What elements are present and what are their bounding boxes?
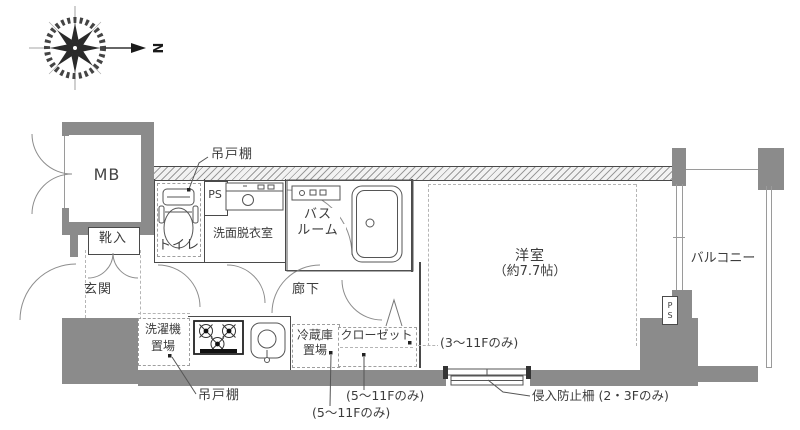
compass-rose: N — [29, 6, 164, 90]
room-label-western-room-line1: 洋室 — [480, 248, 580, 264]
annotation-closet-floors: (5〜11Fのみ) — [346, 389, 424, 403]
room-label-laundry-line2: 置場 — [139, 340, 187, 354]
sink-icon — [251, 323, 285, 363]
annotation-fridge-floors: (5〜11Fのみ) — [312, 406, 390, 420]
dot-closet-floors — [362, 353, 366, 357]
bathroom-counter-icon — [292, 186, 340, 200]
room-label-fridge-line1: 冷蔵庫 — [292, 329, 338, 343]
annotation-hanging-cupboard-bottom: 吊戸棚 — [198, 389, 240, 404]
entry-inner-door-arc-left — [88, 253, 113, 278]
room-label-washroom: 洗面脱衣室 — [202, 227, 284, 241]
annotation-hanging-cupboard-top: 吊戸棚 — [211, 148, 253, 163]
lower-window-stub-left — [443, 366, 448, 379]
western-room-door-arc — [342, 280, 382, 320]
room-label-mb: MB — [84, 166, 130, 184]
room-label-fridge-line2: 置場 — [292, 344, 338, 358]
mb-door-arc-top — [32, 134, 72, 174]
washroom-door-arc — [227, 265, 265, 303]
dot-hanging-cupboard-top — [187, 188, 191, 192]
room-label-bathroom-line1: バス — [296, 208, 340, 223]
plan-drawing-layer: N — [0, 0, 800, 430]
western-room-door-leaf — [386, 300, 402, 326]
entrance-door-arc — [20, 264, 76, 320]
leader-fridge-floors — [330, 355, 331, 406]
room-label-hallway: 廊下 — [292, 283, 320, 298]
room-label-toilet: トイレ — [154, 239, 204, 254]
leader-hanging-cupboard-bottom — [172, 357, 196, 394]
dot-hanging-cupboard-bottom — [168, 354, 172, 358]
room-label-bathroom-line2: ルーム — [290, 224, 346, 239]
room-label-balcony: バルコニー — [686, 252, 760, 267]
room-label-laundry-line1: 洗濯機 — [139, 323, 187, 337]
room-label-western-room-line2: （約7.7帖） — [480, 265, 580, 280]
north-arrow-icon: N — [105, 43, 164, 54]
annotation-intrusion-fence: 侵入防止柵 (2・3Fのみ) — [532, 389, 669, 403]
entry-inner-door-arc-right — [113, 253, 138, 278]
lower-window-icon — [444, 369, 530, 385]
room-label-entrance: 玄関 — [84, 283, 112, 298]
room-label-closet: クローゼット — [338, 329, 415, 343]
annotation-room-floors: (3〜11Fのみ) — [438, 336, 520, 350]
leader-hanging-cupboard-top — [189, 157, 208, 189]
stove-icon — [194, 321, 243, 354]
toilet-door-arc — [158, 265, 200, 307]
washbasin-icon — [226, 183, 283, 210]
floor-plan-canvas: P S N — [0, 0, 800, 430]
bathtub-icon — [352, 186, 402, 262]
room-label-pipe-space-top: PS — [204, 189, 226, 202]
mb-door-arc-bottom — [32, 174, 72, 214]
lower-window-stub-right — [526, 366, 531, 379]
north-label: N — [149, 43, 164, 54]
room-label-shoe-cabinet: 靴入 — [88, 232, 138, 247]
